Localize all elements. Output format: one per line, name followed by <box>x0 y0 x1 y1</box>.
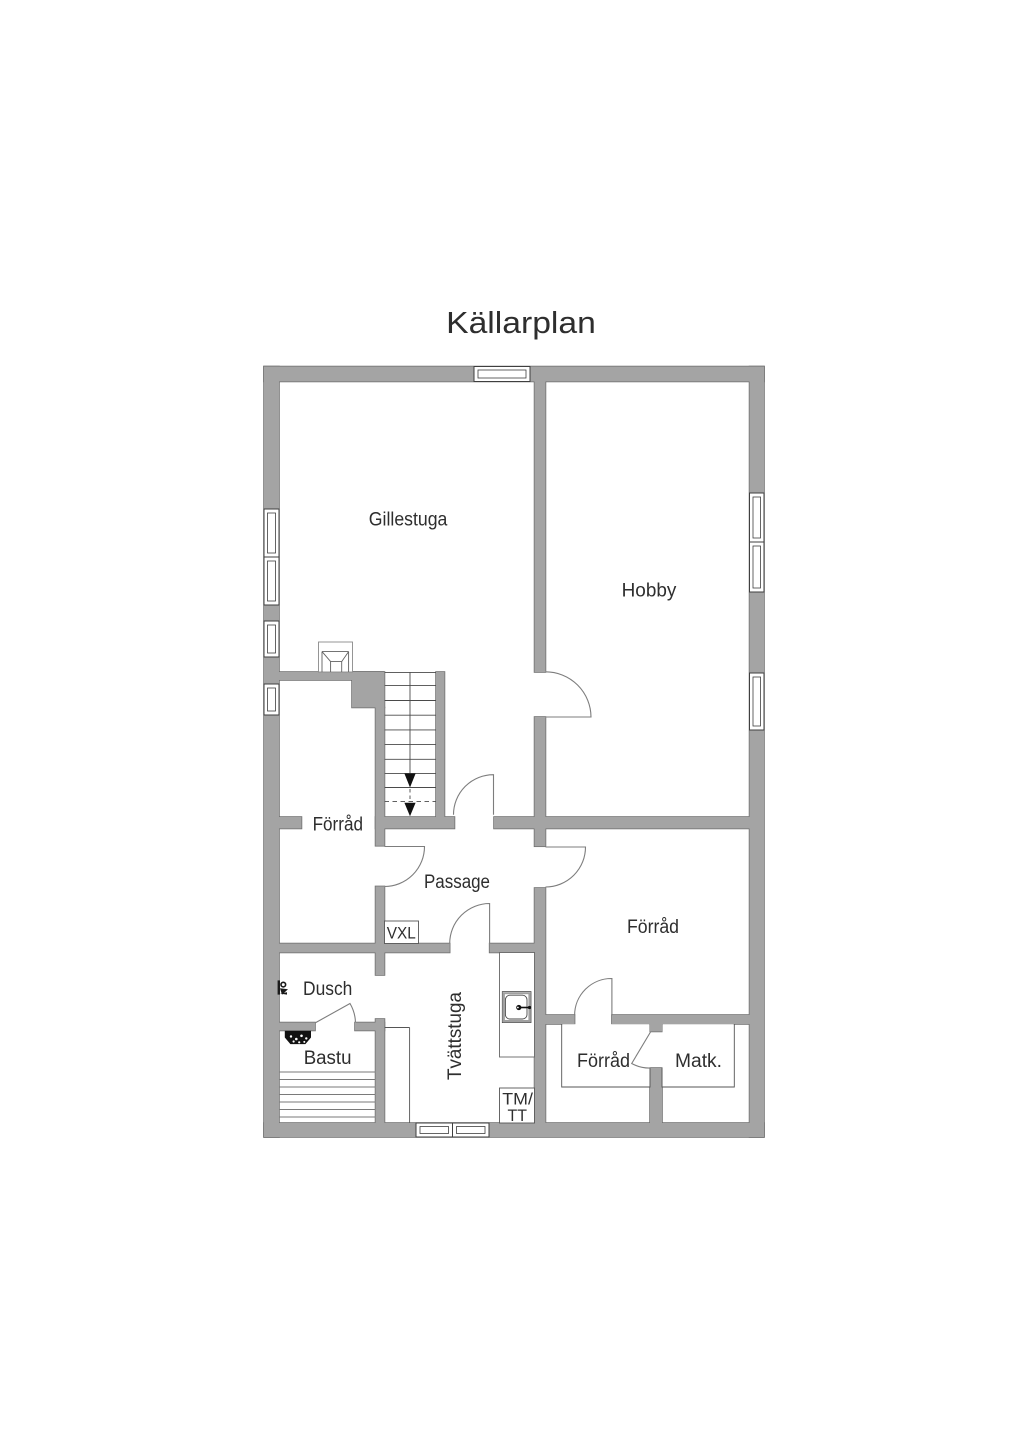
svg-text:Förråd: Förråd <box>577 1051 630 1072</box>
svg-text:Förråd: Förråd <box>627 917 679 938</box>
svg-text:Hobby: Hobby <box>622 581 677 602</box>
svg-text:VXL: VXL <box>387 924 416 943</box>
svg-text:Matk.: Matk. <box>675 1051 722 1072</box>
svg-text:Förråd: Förråd <box>313 815 363 836</box>
svg-text:Gillestuga: Gillestuga <box>369 510 448 531</box>
svg-text:Passage: Passage <box>424 872 490 893</box>
svg-text:Tvättstuga: Tvättstuga <box>445 992 466 1080</box>
svg-text:Dusch: Dusch <box>303 979 352 1000</box>
svg-text:TT: TT <box>508 1107 528 1125</box>
svg-text:Källarplan: Källarplan <box>446 305 596 340</box>
svg-text:TM/: TM/ <box>502 1090 533 1108</box>
svg-text:Bastu: Bastu <box>304 1048 352 1069</box>
